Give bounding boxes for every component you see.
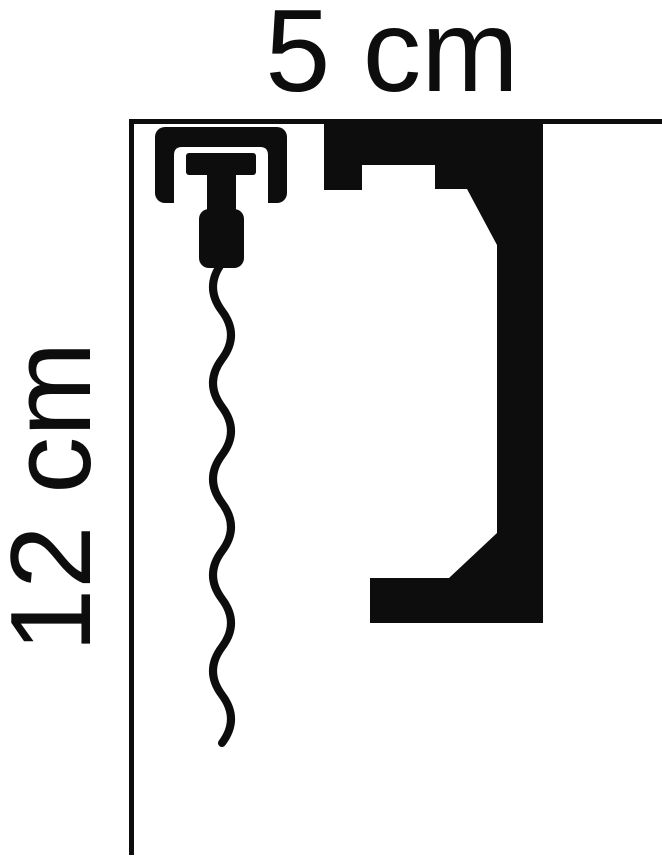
width-dimension-label: 5 cm [265,0,519,116]
diagram-canvas: 5 cm 12 cm [0,0,662,860]
glider-stem [207,168,236,216]
profile-diagram: 5 cm 12 cm [0,0,662,860]
cornice-profile-cross-section [324,119,543,623]
wall-line [129,119,134,855]
curtain-wave-icon [213,263,231,743]
height-dimension-label: 12 cm [0,342,115,652]
curtain-track-icon [155,127,287,268]
